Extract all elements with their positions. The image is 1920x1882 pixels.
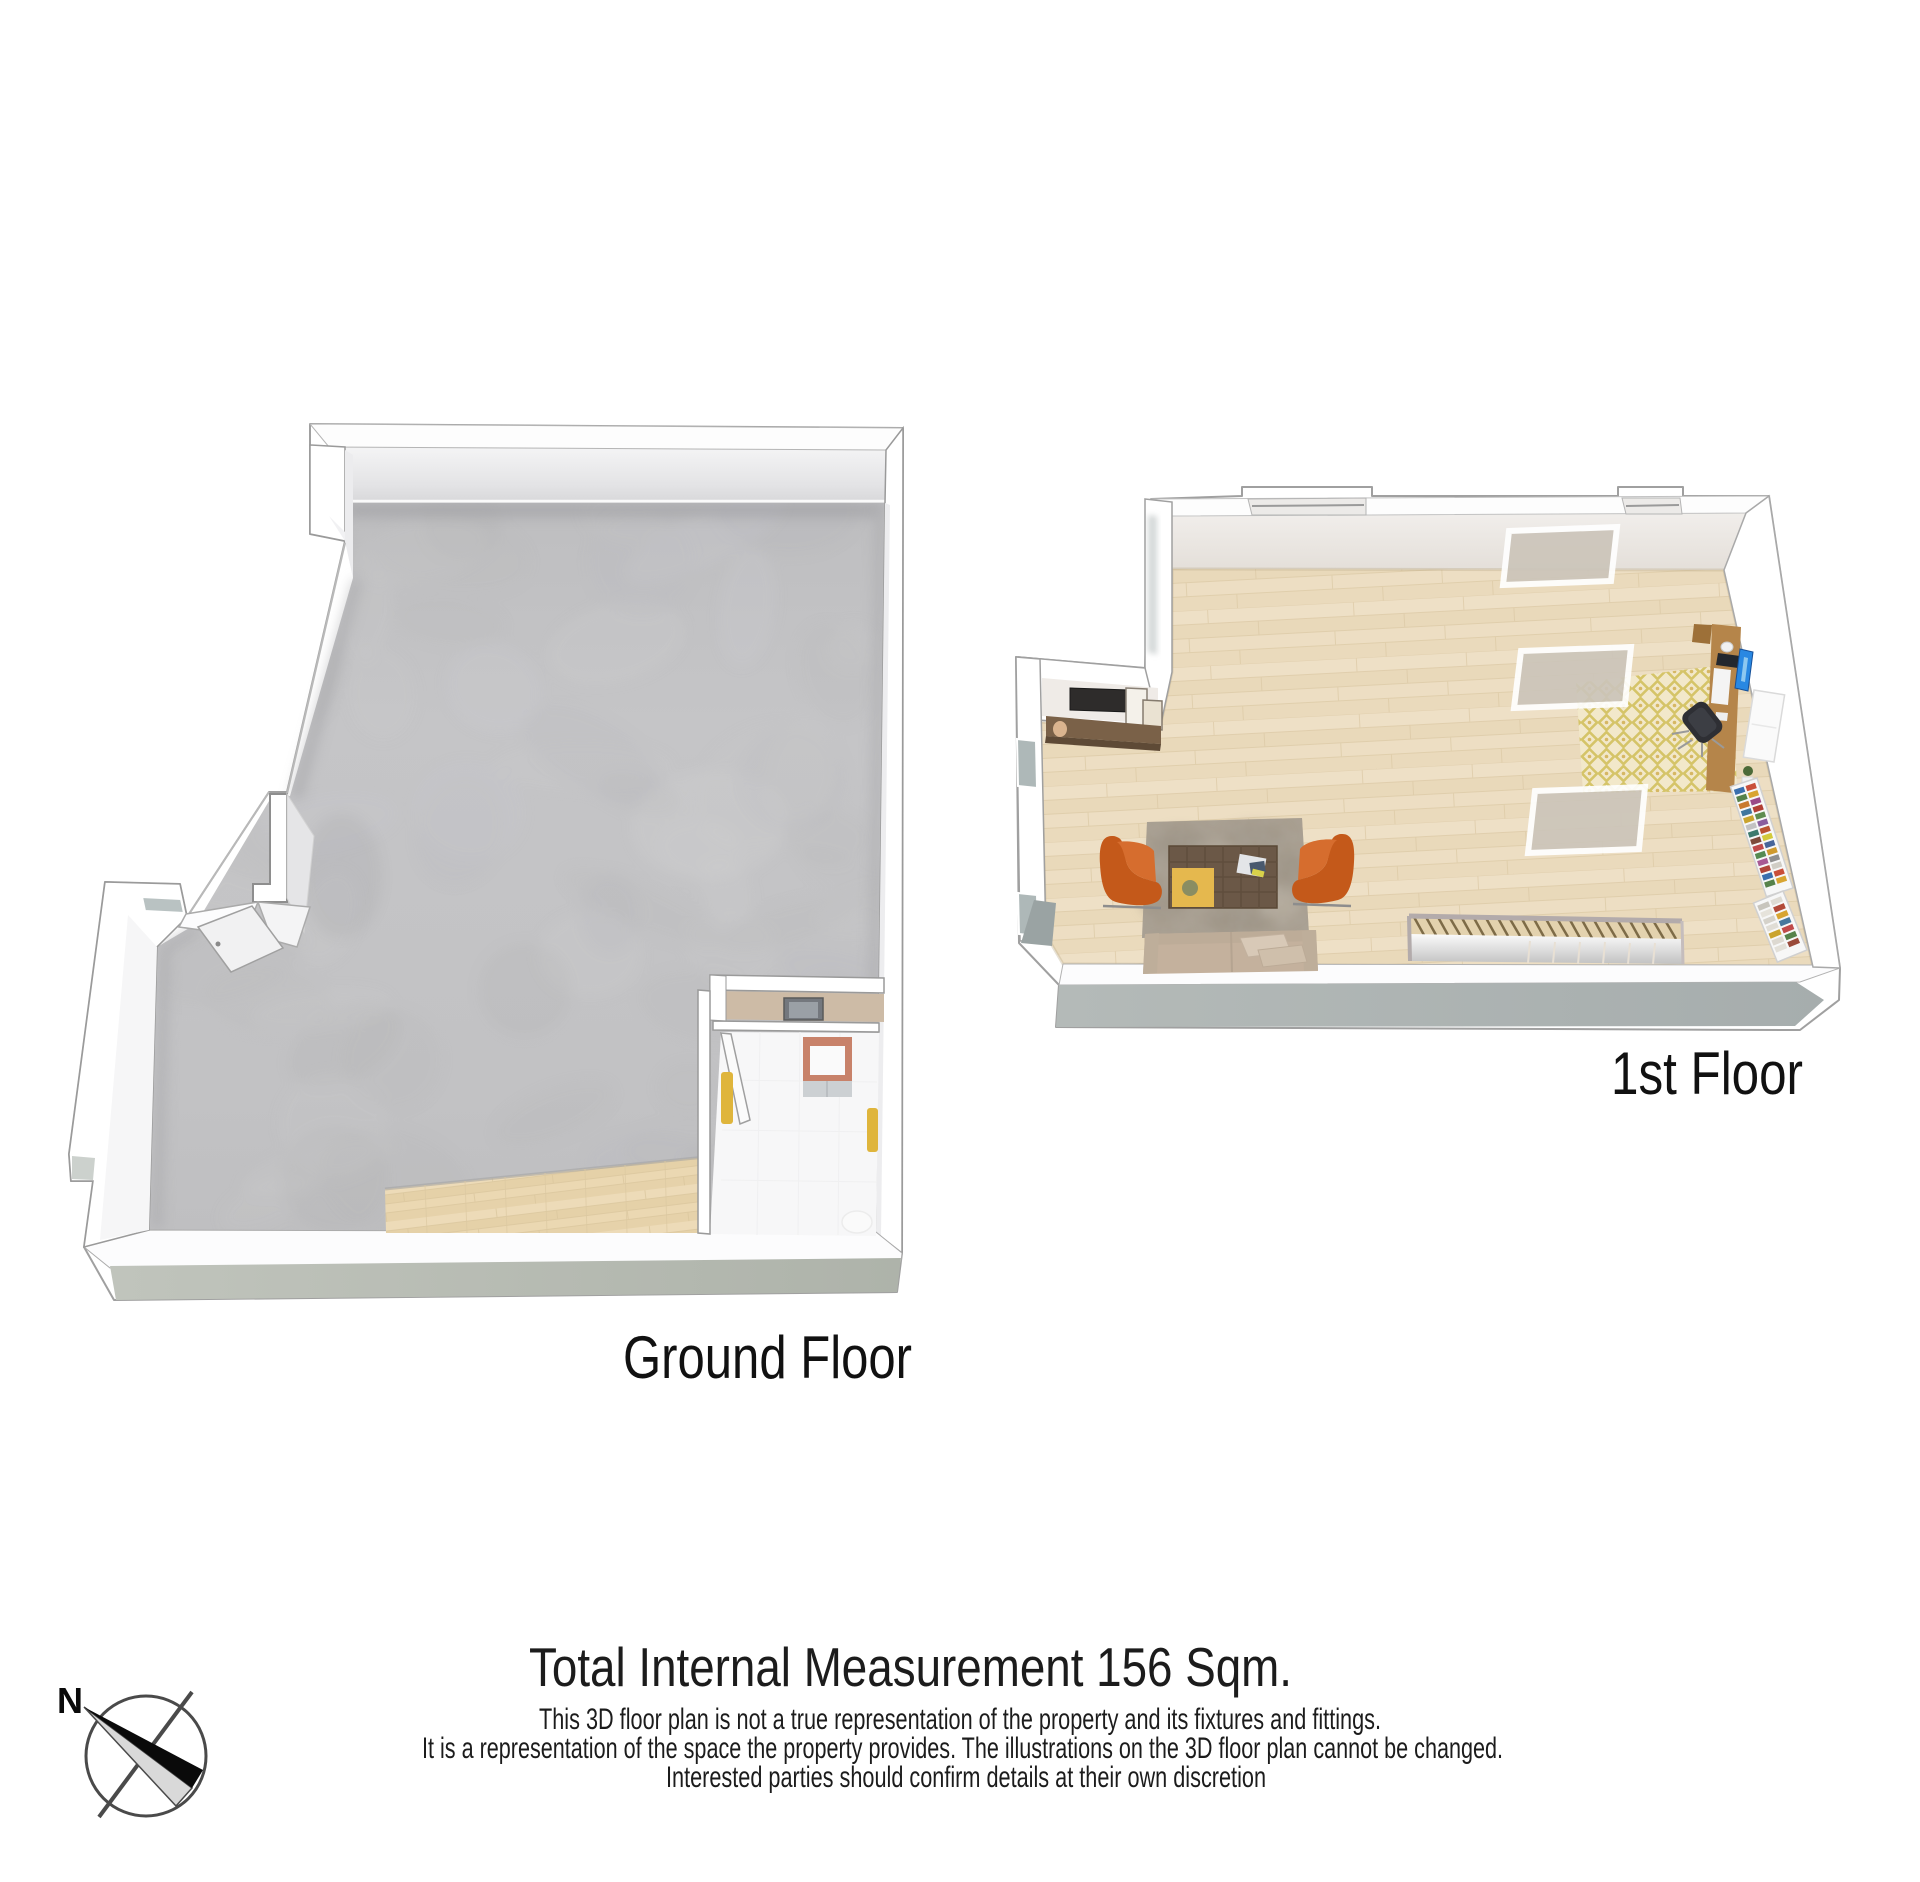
svg-text:Total Internal Measurement 156: Total Internal Measurement 156 Sqm. (529, 1636, 1292, 1698)
svg-text:Ground Floor: Ground Floor (623, 1324, 912, 1391)
svg-text:N: N (57, 1680, 83, 1721)
svg-text:Interested parties should conf: Interested parties should confirm detail… (666, 1761, 1266, 1794)
svg-text:1st Floor: 1st Floor (1611, 1040, 1803, 1107)
